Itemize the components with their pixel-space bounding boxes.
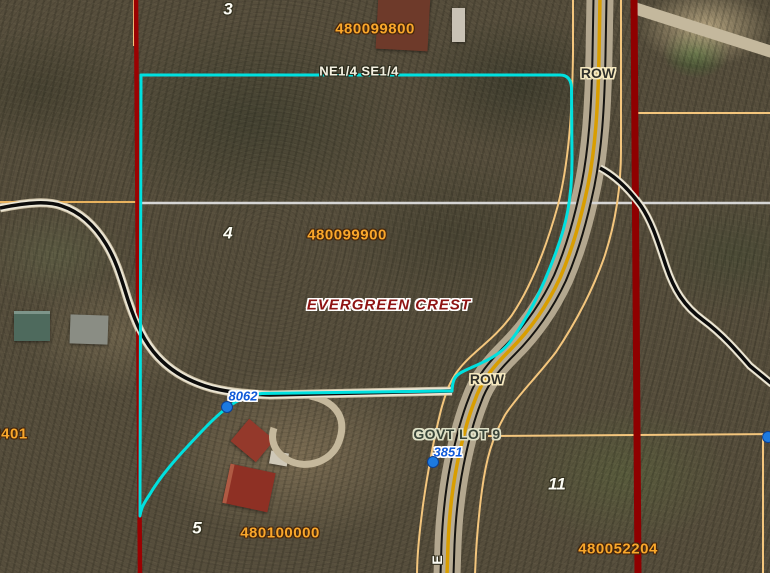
address-point-3851[interactable] — [427, 456, 439, 468]
dirt-trail-right — [600, 168, 770, 384]
main-road-surface-band — [447, 0, 600, 573]
boundary-red-east — [634, 0, 638, 573]
parcel-overlay — [0, 0, 770, 573]
road-surface — [447, 0, 600, 573]
trail-west — [0, 203, 452, 395]
trail-east — [600, 168, 770, 384]
selection-outline — [140, 75, 572, 516]
road-centerline-gold — [447, 0, 600, 573]
road-edge-casing — [447, 0, 600, 573]
address-point-right-edge[interactable] — [762, 431, 770, 443]
dirt-driveway-loop — [273, 396, 342, 464]
dirt-trail-left — [0, 203, 452, 395]
trail-east-casing — [600, 168, 770, 384]
address-point-8062[interactable] — [221, 401, 233, 413]
map-viewport[interactable]: 3 480099800 NE1/4 SE1/4 ROW 4 480099900 … — [0, 0, 770, 573]
parcel-line-govtlot-south — [488, 434, 770, 436]
dirt-road-topright — [634, 8, 770, 52]
trail-west-casing — [0, 203, 452, 395]
